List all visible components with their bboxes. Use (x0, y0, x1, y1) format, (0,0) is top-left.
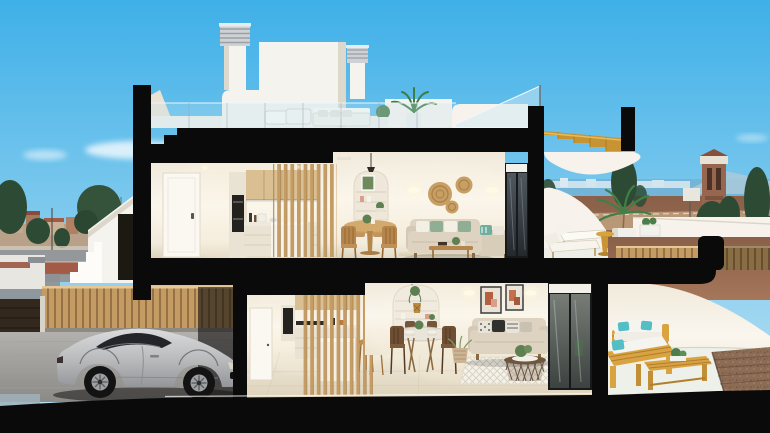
roller-blind-lower (549, 284, 591, 293)
roller-blind (506, 164, 527, 172)
car-door-handle (150, 355, 159, 358)
ac-vent (337, 157, 351, 160)
distant-building (683, 188, 700, 201)
cut-shadow-void (698, 236, 724, 270)
cutaway-scene (0, 0, 770, 433)
car-wheel-front (183, 367, 215, 399)
cut-stair-edge (621, 107, 635, 151)
stair-doorway (118, 214, 133, 280)
interior-door (163, 173, 200, 257)
arch-niche-lower (393, 285, 439, 326)
sliding-door-upper (505, 163, 528, 258)
utility-door (250, 308, 272, 380)
slat-screen (273, 164, 337, 257)
sliding-door-lower (548, 283, 592, 390)
architectural-render (0, 0, 770, 433)
tray (512, 356, 538, 362)
slat-screen-lower (303, 295, 373, 395)
upper-floor (151, 152, 530, 270)
cut-column-living (528, 106, 544, 262)
door-handle (191, 213, 194, 219)
glass-balustrade (151, 103, 456, 128)
car-wheel-rear (84, 366, 116, 398)
